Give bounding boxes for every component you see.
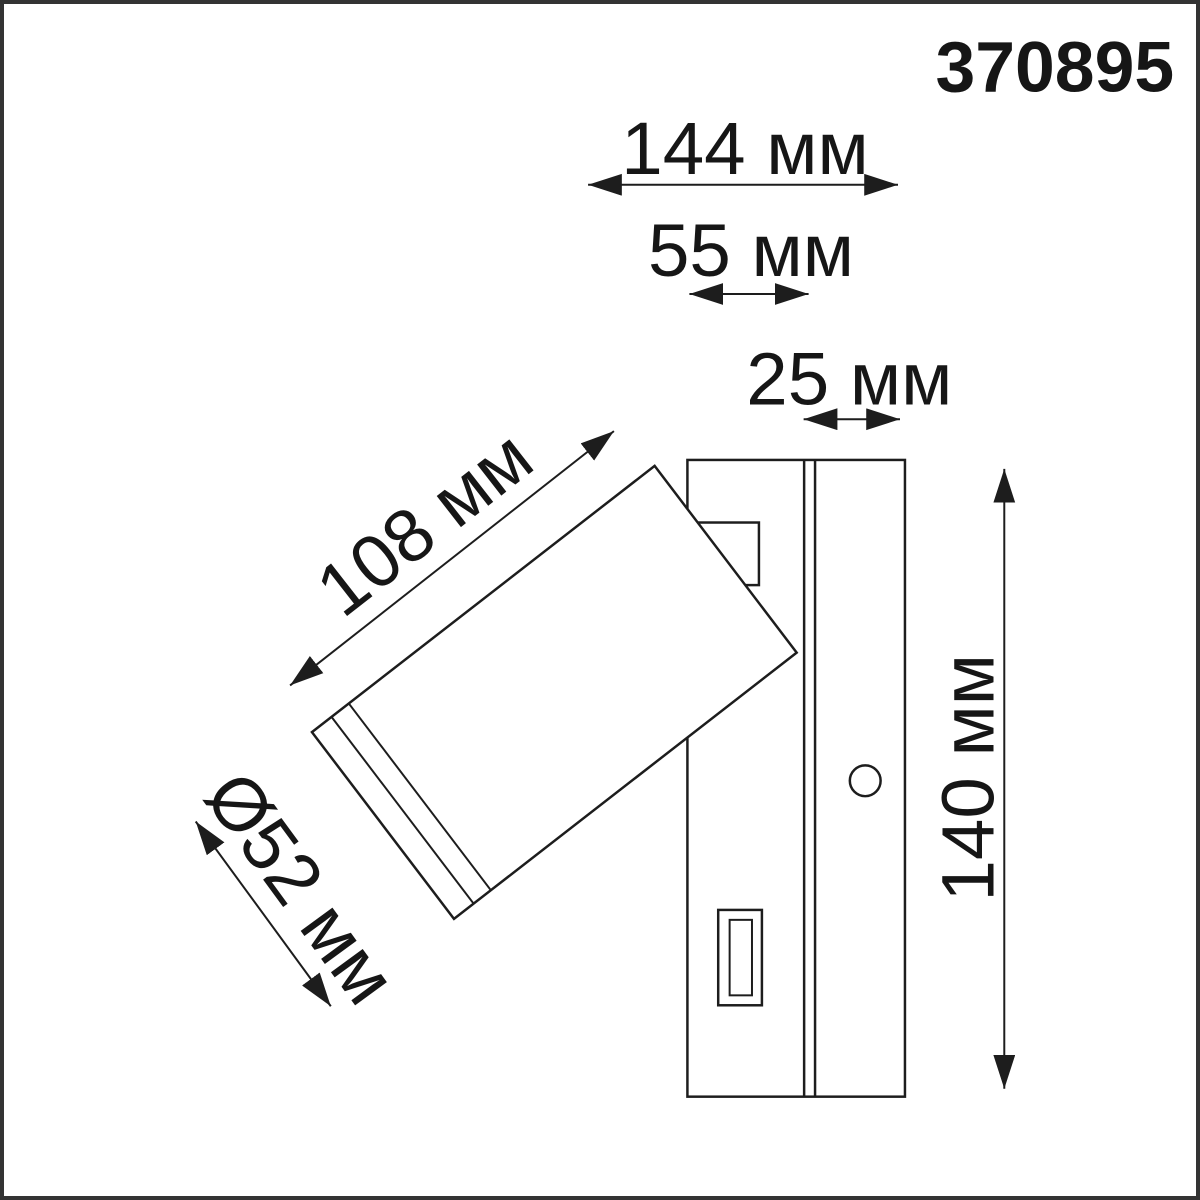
dim-label-plate-height: 140 мм xyxy=(926,654,1009,901)
dim-label-plate-depth: 25 мм xyxy=(746,337,952,420)
drawing-frame: 370895 144 мм 55 мм 25 мм 108 мм Ø52 мм … xyxy=(0,0,1200,1200)
dim-label-plate-width: 55 мм xyxy=(648,209,854,292)
dim-label-total-width: 144 мм xyxy=(621,107,868,190)
product-code: 370895 xyxy=(935,27,1174,107)
